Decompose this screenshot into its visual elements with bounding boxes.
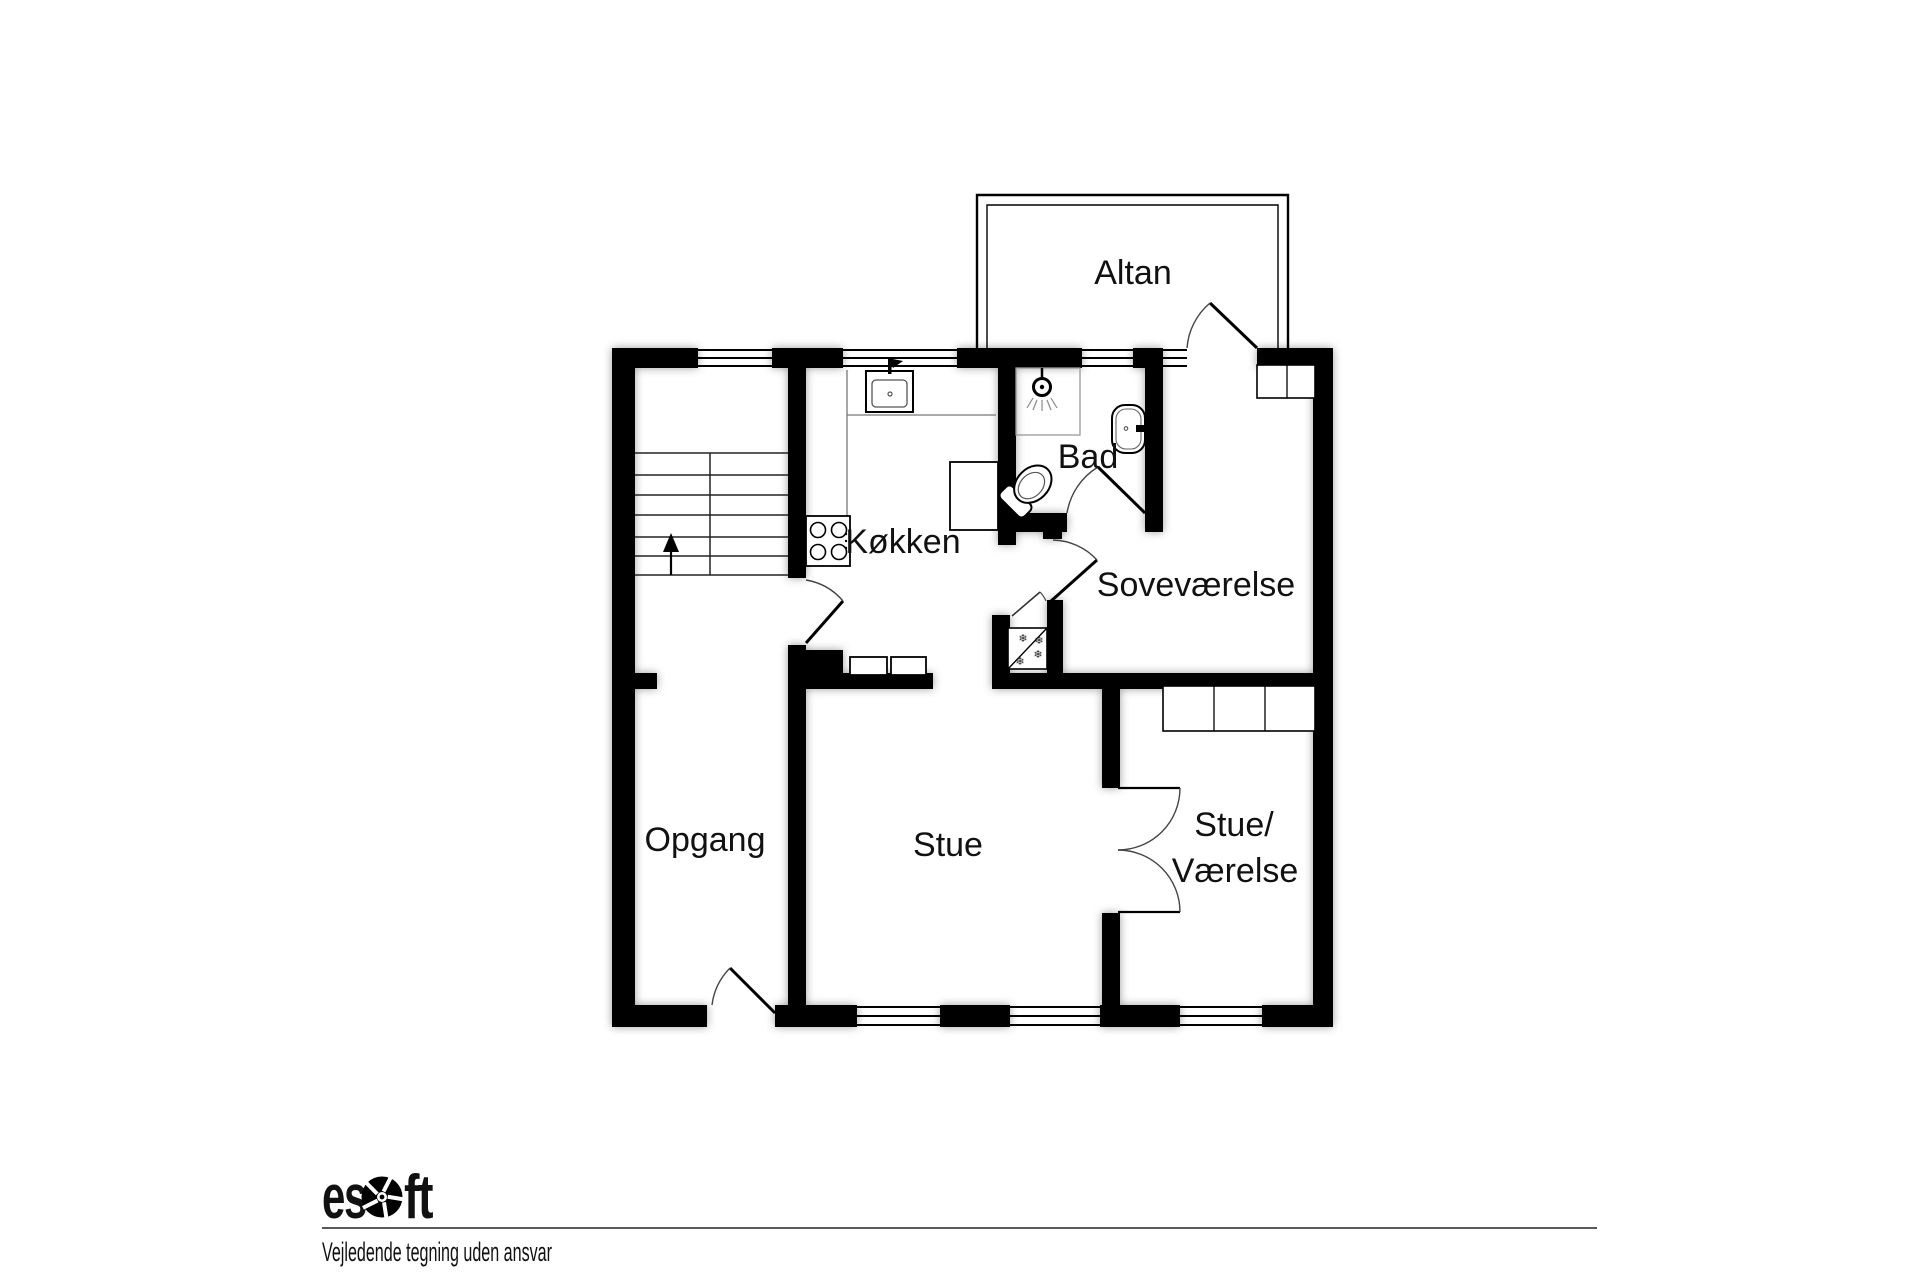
logo-text-es: es — [322, 1163, 366, 1232]
wall — [1043, 513, 1062, 539]
room-label-stue: Stue — [913, 826, 983, 864]
snowflake-icon: ❄ — [1033, 648, 1042, 661]
wall-stue-divider-lower — [1102, 913, 1120, 1005]
room-label-sovevaerelse: Soveværelse — [1097, 566, 1295, 604]
refrigerator-freezer-icon: ❄ ❄ ❄ ❄ — [1008, 628, 1047, 669]
room-sovevaerelse — [1163, 368, 1313, 673]
disclaimer-text: Vejledende tegning uden ansvar — [322, 1237, 552, 1267]
room-label-stue-vaerelse-2: Værelse — [1172, 852, 1299, 890]
wall — [772, 348, 843, 368]
room-label-altan: Altan — [1094, 254, 1172, 292]
wall — [957, 348, 1082, 368]
room-opgang — [635, 368, 788, 1005]
window — [1180, 1007, 1262, 1025]
tall-cabinet — [950, 462, 998, 530]
wall — [1262, 1005, 1333, 1027]
wardrobe — [1163, 686, 1315, 731]
esoft-logo: es ft — [322, 1163, 433, 1232]
logo-text-ft: ft — [404, 1163, 433, 1232]
floor-plan-page: ❄ ❄ ❄ ❄ — [0, 0, 1920, 1280]
snowflake-icon: ❄ — [1034, 634, 1043, 647]
room-label-opgang: Opgang — [645, 821, 766, 859]
snowflake-icon: ❄ — [1018, 632, 1027, 645]
window — [1163, 350, 1187, 366]
window — [698, 350, 772, 366]
wardrobe — [1257, 365, 1315, 398]
wall-opgang-stue — [788, 645, 806, 1005]
wall-niche-right — [1047, 600, 1063, 675]
wall — [940, 1005, 1010, 1027]
wall — [1100, 1005, 1180, 1027]
window — [843, 350, 957, 366]
cabinet-box — [891, 657, 926, 675]
footer: es ft Vejledende tegning uden ansvar — [322, 1163, 1597, 1267]
window — [857, 1007, 940, 1025]
stove-burners-icon — [806, 516, 850, 566]
wall-pier — [635, 673, 657, 689]
cabinet-box — [850, 657, 887, 675]
wall-stue-divider-upper — [1102, 689, 1120, 788]
window — [1082, 350, 1133, 366]
logo-aperture-icon — [362, 1177, 404, 1219]
wall-bad-sovevaerelse — [1145, 368, 1163, 532]
wall — [806, 650, 843, 673]
wall — [775, 1005, 857, 1027]
wall-left — [612, 348, 635, 1027]
wall — [1133, 348, 1163, 368]
room-stue-vaerelse — [1120, 689, 1313, 1005]
wall — [612, 1005, 707, 1027]
snowflake-icon: ❄ — [1015, 655, 1024, 668]
window — [1010, 1007, 1100, 1025]
wall-opgang-kokken — [788, 368, 806, 578]
room-label-stue-vaerelse-1: Stue/ — [1194, 806, 1274, 844]
floor-plan-drawing: ❄ ❄ ❄ ❄ — [0, 0, 1920, 1280]
wall-right — [1313, 348, 1333, 1027]
room-label-kokken: Køkken — [845, 523, 960, 561]
room-label-bad: Bad — [1058, 438, 1119, 476]
